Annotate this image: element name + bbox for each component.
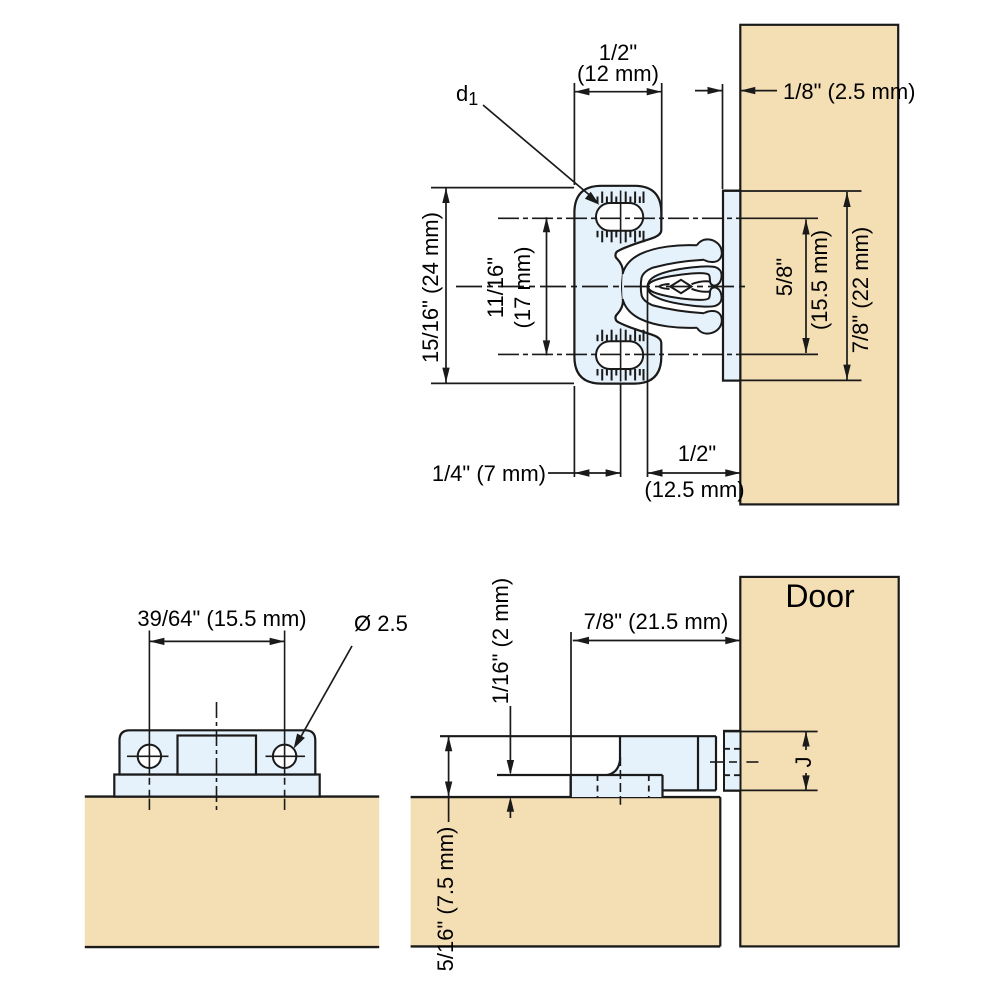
svg-text:(17 mm): (17 mm)	[510, 247, 535, 329]
svg-text:(12.5 mm): (12.5 mm)	[644, 477, 744, 502]
svg-text:(12 mm): (12 mm)	[577, 61, 659, 86]
svg-text:Ø 2.5: Ø 2.5	[354, 611, 408, 636]
svg-text:7/8" (22 mm): 7/8" (22 mm)	[848, 227, 873, 353]
svg-text:1/4" (7 mm): 1/4" (7 mm)	[432, 461, 546, 486]
svg-text:15/16" (24 mm): 15/16" (24 mm)	[418, 212, 443, 363]
svg-text:1/2": 1/2"	[678, 441, 716, 466]
svg-text:11/16": 11/16"	[483, 257, 508, 318]
svg-text:(15.5 mm): (15.5 mm)	[807, 230, 832, 330]
svg-text:7/8" (21.5 mm): 7/8" (21.5 mm)	[584, 609, 729, 634]
svg-text:Door: Door	[785, 578, 855, 614]
svg-text:5/16" (7.5 mm): 5/16" (7.5 mm)	[433, 827, 458, 972]
svg-text:5/8": 5/8"	[772, 258, 797, 296]
svg-text:39/64" (15.5 mm): 39/64" (15.5 mm)	[137, 606, 306, 631]
svg-text:J: J	[791, 757, 816, 768]
svg-text:d1: d1	[456, 81, 478, 109]
svg-text:1/8" (2.5 mm): 1/8" (2.5 mm)	[783, 79, 916, 104]
svg-text:1/16" (2 mm): 1/16" (2 mm)	[488, 578, 513, 704]
